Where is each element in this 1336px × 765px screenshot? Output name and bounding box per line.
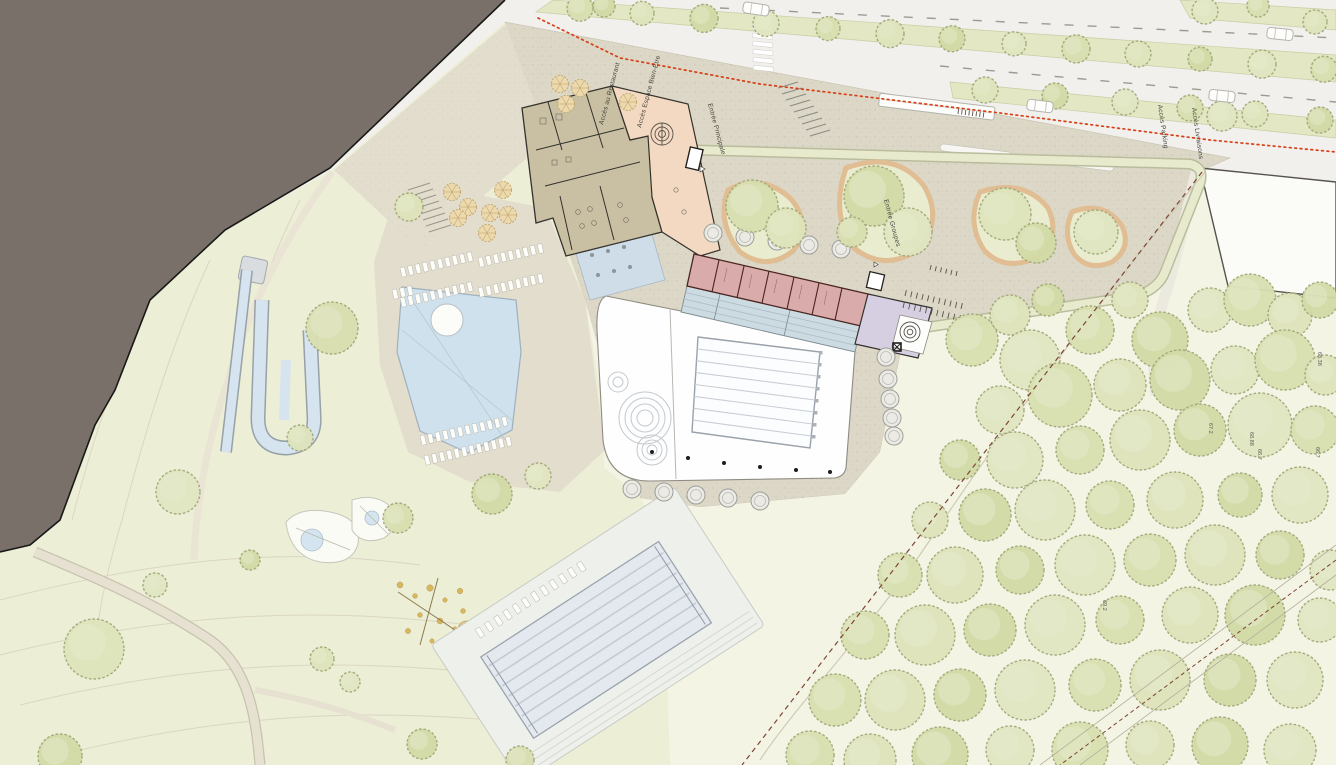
site-plan-canvas: Accès au Restaurant Accès Espace Bien-Êt…	[0, 0, 1336, 765]
tree	[1185, 525, 1245, 585]
spot-elevation: 69.2	[1101, 600, 1107, 611]
tree	[939, 26, 965, 52]
tree	[1147, 472, 1203, 528]
tree	[690, 4, 718, 32]
tree	[934, 669, 986, 721]
indoor-50m-pool	[692, 337, 823, 448]
planter	[877, 348, 895, 366]
tree	[912, 502, 948, 538]
spot-elevation: 68.88	[1248, 432, 1254, 446]
site-plan-drawing: Accès au Restaurant Accès Espace Bien-Êt…	[0, 0, 1336, 765]
tree	[878, 553, 922, 597]
tree	[1303, 10, 1327, 34]
tree	[1125, 41, 1151, 67]
tree	[64, 619, 124, 679]
tree	[1094, 359, 1146, 411]
parasol	[495, 182, 512, 199]
tree	[766, 208, 806, 248]
tree	[1218, 473, 1262, 517]
spot-elevation: 67.2	[1207, 423, 1213, 434]
tree	[1307, 107, 1333, 133]
tree	[1016, 223, 1056, 263]
tree	[306, 302, 358, 354]
tree	[1267, 652, 1323, 708]
tree	[395, 193, 423, 221]
tree	[1074, 210, 1118, 254]
tree	[525, 463, 551, 489]
tree	[1032, 284, 1064, 316]
tree	[1062, 35, 1090, 63]
spot-elevation: 66.7	[1256, 449, 1262, 460]
tree	[1069, 659, 1121, 711]
tree	[990, 295, 1030, 335]
tree	[310, 647, 334, 671]
tree	[964, 604, 1016, 656]
tree	[1066, 306, 1114, 354]
tree	[1130, 650, 1190, 710]
tree	[1110, 410, 1170, 470]
parasol	[444, 184, 461, 201]
pool-island	[431, 304, 463, 336]
tree	[1242, 101, 1268, 127]
tree	[1211, 346, 1259, 394]
group-entrance-door	[866, 272, 884, 291]
planter	[704, 224, 722, 242]
tree	[407, 729, 437, 759]
tree	[1228, 393, 1292, 457]
tree	[1124, 534, 1176, 586]
tree	[1204, 654, 1256, 706]
tree	[876, 20, 904, 48]
tree	[383, 503, 413, 533]
tree	[287, 425, 313, 451]
parasol	[500, 207, 517, 224]
tree	[1028, 363, 1092, 427]
tree	[895, 605, 955, 665]
parasol	[450, 210, 467, 227]
tree	[630, 1, 654, 25]
tree	[1311, 56, 1336, 82]
planter	[885, 427, 903, 445]
tree	[837, 217, 867, 247]
tree	[143, 573, 167, 597]
tree	[959, 489, 1011, 541]
tree	[240, 550, 260, 570]
tree	[996, 546, 1044, 594]
tree	[987, 432, 1043, 488]
spot-elevation: 66.7	[1314, 447, 1320, 458]
parasol	[482, 205, 499, 222]
tree	[1002, 32, 1026, 56]
tree	[1056, 426, 1104, 474]
parasol	[558, 96, 575, 113]
planter	[883, 409, 901, 427]
tree	[1112, 282, 1148, 318]
parasol	[479, 225, 496, 242]
tree	[1188, 47, 1212, 71]
planter	[881, 390, 899, 408]
parasol	[552, 76, 569, 93]
planter	[719, 489, 737, 507]
tree	[1248, 50, 1276, 78]
parasol	[620, 94, 637, 111]
tree	[1025, 595, 1085, 655]
tree	[865, 670, 925, 730]
tree	[1055, 535, 1115, 595]
car	[1266, 27, 1293, 41]
planter	[879, 370, 897, 388]
tree	[809, 674, 861, 726]
spot-elevation: 68.38	[1316, 352, 1322, 366]
car	[1208, 89, 1235, 103]
planter	[687, 486, 705, 504]
tree	[1272, 467, 1328, 523]
tree	[972, 77, 998, 103]
tree	[1015, 480, 1075, 540]
tree	[1150, 350, 1210, 410]
tree	[927, 547, 983, 603]
tree	[1207, 101, 1237, 131]
planter	[751, 492, 769, 510]
planter	[623, 480, 641, 498]
tree	[995, 660, 1055, 720]
tree	[1112, 89, 1138, 115]
tree	[1086, 481, 1134, 529]
tree	[1256, 531, 1304, 579]
planter	[655, 483, 673, 501]
tree	[340, 672, 360, 692]
tree	[472, 474, 512, 514]
tree	[1302, 282, 1336, 318]
parasol	[572, 80, 589, 97]
tree	[816, 17, 840, 41]
tree	[946, 314, 998, 366]
tree	[1174, 404, 1226, 456]
tree	[940, 440, 980, 480]
tree	[1162, 587, 1218, 643]
tree	[841, 611, 889, 659]
tree	[156, 470, 200, 514]
